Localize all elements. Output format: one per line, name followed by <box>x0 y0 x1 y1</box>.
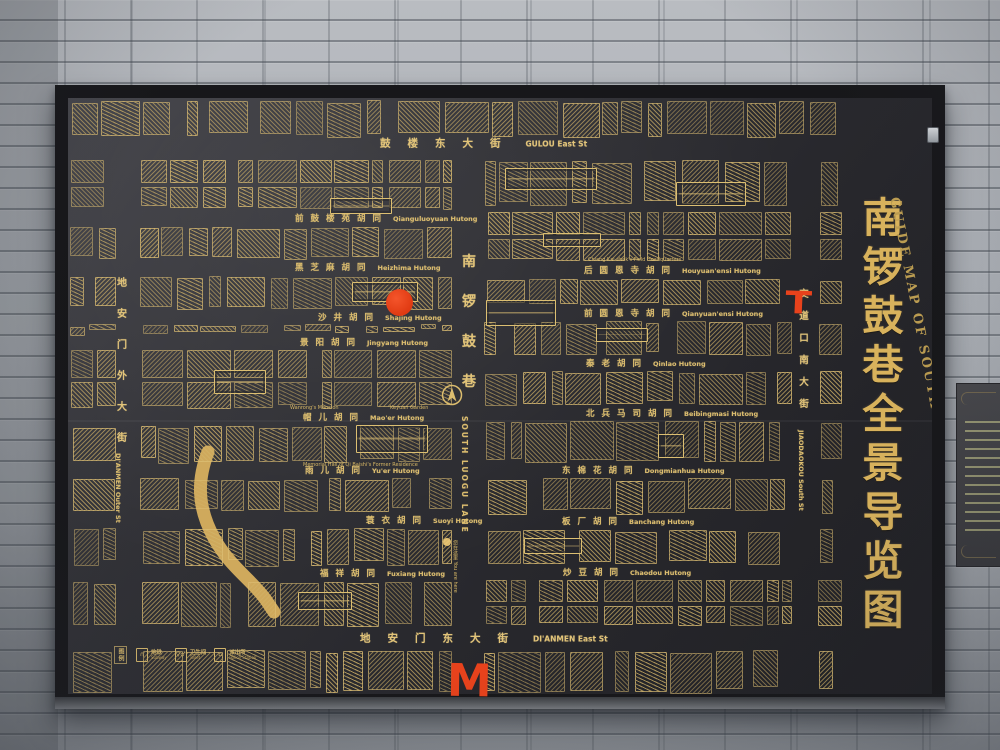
building-illustration <box>356 425 428 453</box>
map-block <box>259 428 287 462</box>
map-block <box>407 651 433 690</box>
map-block <box>485 161 496 206</box>
hutong-en: Mao'er Hutong <box>370 414 424 422</box>
map-block <box>237 229 280 258</box>
map-block <box>706 580 725 602</box>
map-block <box>187 101 198 137</box>
street-char: 南 <box>454 242 484 282</box>
hutong-label: 帽儿胡同Mao'er Hutong <box>303 411 424 423</box>
map-block <box>238 160 254 183</box>
map-block <box>747 103 776 138</box>
map-block <box>189 228 208 257</box>
map-block <box>511 580 526 602</box>
map-block <box>552 371 563 405</box>
street-char: 大 <box>792 372 816 394</box>
hutong-cn: 福祥胡同 <box>320 567 382 579</box>
hutong-en: Qianguluoyuan Hutong <box>393 215 477 223</box>
map-block <box>142 382 183 406</box>
map-block <box>709 531 736 562</box>
map-block <box>392 478 411 508</box>
map-block <box>677 321 707 354</box>
map-block <box>820 371 842 404</box>
map-block <box>140 277 171 308</box>
map-block <box>161 227 182 256</box>
photo-of-guide-map-sign: 鼓楼东大街 GULOU East St 地安门东大街 DI'ANMEN East… <box>0 0 1000 750</box>
hutong-label: 福祥胡同Fuxiang Hutong <box>320 567 445 579</box>
map-block <box>443 187 452 210</box>
plaque-scroll-ornament <box>961 545 996 558</box>
map-block <box>141 187 167 206</box>
hutong-en: Yu'er Hutong <box>372 467 420 475</box>
title-char: 览 <box>854 537 912 586</box>
map-block <box>511 422 523 459</box>
map-block <box>185 529 223 566</box>
map-block <box>539 606 563 624</box>
map-block <box>300 160 331 183</box>
map-block <box>278 350 307 378</box>
map-block <box>260 101 290 134</box>
map-block <box>566 324 596 355</box>
map-block <box>366 326 378 334</box>
map-block <box>719 239 762 261</box>
map-block <box>745 279 779 303</box>
you-are-here-en: You are here <box>452 562 458 593</box>
map-block <box>543 478 567 510</box>
map-block <box>648 481 686 513</box>
map-block <box>486 422 505 460</box>
map-block <box>525 423 567 463</box>
plaque-scroll-ornament <box>961 392 996 405</box>
map-block <box>821 423 842 459</box>
hutong-en: Beibingmasi Hutong <box>684 410 758 418</box>
map-block <box>688 478 731 509</box>
map-block <box>644 161 675 201</box>
map-block <box>818 580 842 602</box>
map-block <box>226 426 253 461</box>
building-illustration <box>524 538 582 554</box>
street-char: 口 <box>792 328 816 350</box>
map-block <box>810 102 837 135</box>
map-block <box>343 651 363 692</box>
map-block <box>142 350 183 378</box>
map-block <box>663 212 684 235</box>
map-block <box>72 103 97 136</box>
map-block <box>602 102 618 135</box>
map-block <box>629 212 641 235</box>
map-block <box>604 580 633 602</box>
map-block <box>170 160 198 183</box>
map-block <box>730 580 764 602</box>
map-block <box>616 422 659 461</box>
map-block <box>545 652 565 693</box>
hutong-cn: 北兵马司胡同 <box>586 407 679 419</box>
red-letter-m: M <box>447 658 493 704</box>
hutong-en: Suoyi Hutong <box>433 517 482 525</box>
map-block <box>636 606 674 625</box>
map-block <box>512 212 553 235</box>
map-block <box>334 382 372 407</box>
map-block <box>779 101 804 134</box>
map-block <box>248 481 280 511</box>
building-illustration <box>298 592 352 610</box>
map-block <box>311 531 322 566</box>
map-block <box>389 187 422 208</box>
map-block <box>488 480 527 515</box>
hutong-label: 黑芝麻胡同Heizhima Hutong <box>295 261 441 273</box>
hutong-cn: 前圆恩寺胡同 <box>584 307 677 319</box>
map-block <box>94 584 116 625</box>
map-block <box>484 322 496 355</box>
map-block <box>518 101 558 134</box>
map-block <box>819 651 833 689</box>
map-block <box>101 101 140 136</box>
map-block <box>821 162 839 206</box>
map-block <box>268 651 307 690</box>
map-block <box>384 229 423 259</box>
map-block <box>730 606 764 626</box>
map-block <box>335 326 349 333</box>
map-block <box>647 371 672 401</box>
map-block <box>377 382 416 407</box>
map-block <box>220 583 231 628</box>
street-char: 街 <box>792 394 816 416</box>
map-block <box>74 529 99 566</box>
map-block <box>764 162 787 207</box>
hutong-cn: 东棉花胡同 <box>562 464 640 476</box>
map-block <box>704 421 717 462</box>
site-label: Memorial Hall of Qi Baishi's Former Resi… <box>303 462 418 468</box>
map-block <box>748 532 780 566</box>
building-illustration <box>658 434 684 458</box>
side-plaque <box>956 383 1000 567</box>
map-block <box>278 382 307 406</box>
map-block <box>143 531 180 564</box>
map-block <box>604 606 633 625</box>
map-block <box>424 582 452 627</box>
map-block <box>372 160 384 183</box>
map-block <box>710 101 744 136</box>
hutong-en: Banchang Hutong <box>629 518 694 526</box>
map-block <box>777 372 792 403</box>
map-block <box>70 327 85 336</box>
map-block <box>383 327 416 332</box>
map-block <box>367 100 381 134</box>
map-block <box>629 239 641 260</box>
map-block <box>73 479 115 511</box>
map-block <box>485 374 518 406</box>
map-block <box>89 324 116 329</box>
hutong-label: 前圆恩寺胡同Qianyuan'ensi Hutong <box>584 307 763 319</box>
hutong-en: Chaodou Hutong <box>630 569 691 577</box>
map-block <box>615 532 657 564</box>
map-block <box>765 212 790 235</box>
map-block <box>97 350 116 378</box>
map-block <box>746 372 766 405</box>
map-block <box>284 229 307 260</box>
map-block <box>579 530 612 561</box>
map-block <box>770 479 785 510</box>
building-illustration <box>676 182 746 206</box>
building-illustration <box>214 370 266 394</box>
hutong-cn: 景阳胡同 <box>300 336 362 348</box>
legend-title: 图例 <box>114 646 127 664</box>
title-char: 巷 <box>854 341 912 390</box>
map-block <box>419 350 452 378</box>
map-block <box>716 651 743 690</box>
map-block <box>421 324 436 329</box>
map-block <box>73 428 116 462</box>
map-block <box>767 606 779 626</box>
map-block <box>539 580 563 602</box>
map-block <box>99 228 116 258</box>
map-block <box>739 422 765 462</box>
map-block <box>648 103 662 137</box>
map-block <box>688 239 716 260</box>
map-block <box>429 478 452 509</box>
hutong-en: Shajing Hutong <box>385 314 442 322</box>
map-block <box>486 606 507 625</box>
street-en: DI'ANMEN East St <box>533 635 608 644</box>
map-block <box>305 324 331 331</box>
hutong-label: 景阳胡同Jingyang Hutong <box>300 336 428 348</box>
map-block <box>398 101 440 133</box>
map-block <box>735 479 767 511</box>
map-block <box>488 212 510 235</box>
map-block <box>570 421 614 460</box>
map-block <box>70 277 84 306</box>
red-letter-t: T <box>785 288 813 320</box>
hutong-label: 东棉花胡同Dongmianhua Hutong <box>562 464 725 476</box>
map-block <box>141 160 167 183</box>
map-block <box>720 422 736 462</box>
map-block <box>746 324 771 356</box>
hutong-en: Qinlao Hutong <box>653 360 706 368</box>
hutong-label: 后圆恩寺胡同Houyuan'ensi Hutong <box>584 264 761 276</box>
map-block <box>592 163 631 204</box>
map-block <box>635 652 668 692</box>
street-label-south-luogu-cn: 南锣鼓巷 <box>454 242 484 402</box>
map-block <box>334 160 369 183</box>
map-block <box>777 322 792 354</box>
map-block <box>389 160 422 183</box>
map-block <box>636 580 674 602</box>
map-block <box>387 529 405 565</box>
map-block <box>248 582 277 626</box>
map-block <box>158 428 189 464</box>
hutong-cn: 帽儿胡同 <box>303 411 365 423</box>
map-block <box>647 212 660 235</box>
map-block <box>310 651 322 688</box>
hutong-label: 蓑衣胡同Suoyi Hutong <box>366 514 482 526</box>
map-block <box>141 426 156 458</box>
map-block <box>563 103 600 139</box>
hutong-en: Dongmianhua Hutong <box>645 467 725 475</box>
map-block <box>819 324 842 355</box>
map-block <box>142 582 179 624</box>
building-illustration <box>486 300 556 326</box>
map-block <box>408 530 439 565</box>
map-block <box>514 323 535 355</box>
title-char: 导 <box>854 488 912 537</box>
map-block <box>699 374 743 405</box>
building-illustration <box>330 198 392 214</box>
street-char: 鼓 <box>454 322 484 362</box>
map-block <box>271 278 288 308</box>
map-block <box>425 160 440 183</box>
map-block <box>203 187 226 208</box>
street-label-dianmen-outer-en: DI'ANMEN Outer St <box>114 453 122 523</box>
map-block <box>345 480 389 512</box>
title-char: 图 <box>854 586 912 635</box>
map-block <box>352 227 379 257</box>
map-block <box>570 478 610 509</box>
sign-frame-bottom-lip <box>55 697 945 709</box>
map-block <box>73 582 88 625</box>
map-block <box>347 583 379 626</box>
map-block <box>200 326 236 332</box>
map-block <box>442 530 452 564</box>
hutong-cn: 秦老胡同 <box>586 357 648 369</box>
map-block <box>245 530 278 567</box>
map-block <box>707 280 743 304</box>
map-block <box>227 277 266 307</box>
map-block <box>820 281 842 304</box>
map-block <box>71 187 104 207</box>
hutong-cn: 炒豆胡同 <box>563 566 625 578</box>
map-block <box>97 382 116 407</box>
map-block <box>327 103 361 139</box>
map-block <box>782 606 792 624</box>
map-block <box>541 322 562 355</box>
map-block <box>368 651 404 690</box>
map-block <box>765 239 790 259</box>
map-block <box>498 652 540 693</box>
street-char: 锣 <box>454 282 484 322</box>
hutong-cn: 板厂胡同 <box>562 515 624 527</box>
map-block <box>143 102 170 135</box>
map-block <box>174 325 198 332</box>
map-block <box>311 228 349 257</box>
map-block <box>185 480 218 509</box>
map-block <box>209 276 221 307</box>
map-block <box>71 382 94 409</box>
map-block <box>706 606 725 624</box>
map-block <box>322 382 332 409</box>
map-block <box>284 480 319 512</box>
map-block <box>615 651 629 692</box>
street-label-dianmen-east: 地安门东大街 DI'ANMEN East St <box>360 631 608 646</box>
map-block <box>143 325 168 334</box>
hutong-label: 炒豆胡同Chaodou Hutong <box>563 566 691 578</box>
street-label-jiaodaokou-en: JIAODAOKOU South St <box>797 430 805 511</box>
map-block <box>228 528 243 560</box>
map-block <box>385 582 412 624</box>
map-block <box>296 101 323 136</box>
map-block <box>669 530 707 562</box>
map-block <box>580 280 618 305</box>
street-cn: 鼓楼东大街 <box>380 136 518 151</box>
map-block <box>170 187 198 208</box>
plaque-text-lines <box>965 414 1000 536</box>
map-block <box>565 373 600 405</box>
street-char: 南 <box>792 350 816 372</box>
you-are-here-label: 您在这里 You are here <box>452 540 459 593</box>
title-char: 鼓 <box>854 292 912 341</box>
map-block <box>300 187 331 209</box>
map-block <box>679 373 695 404</box>
map-block <box>667 101 708 134</box>
hutong-en: Houyuan'ensi Hutong <box>682 267 761 275</box>
map-block <box>822 480 833 514</box>
hutong-cn: 沙井胡同 <box>318 311 380 323</box>
street-en: GULOU East St <box>526 140 588 149</box>
map-block <box>438 277 452 309</box>
map-block <box>556 212 580 235</box>
map-block <box>488 531 521 564</box>
map-block <box>258 160 297 183</box>
map-block <box>445 102 489 133</box>
map-block <box>73 652 112 693</box>
hutong-label: 北兵马司胡同Beibingmasi Hutong <box>586 407 758 419</box>
hutong-en: Fuxiang Hutong <box>387 570 445 578</box>
title-char: 全 <box>854 390 912 439</box>
map-block <box>203 160 226 183</box>
you-are-here-cn: 您在这里 <box>452 540 458 560</box>
map-block <box>647 239 660 261</box>
map-block <box>329 478 341 510</box>
map-block <box>334 350 372 378</box>
hutong-label: 秦老胡同Qinlao Hutong <box>586 357 706 369</box>
map-block <box>511 606 526 626</box>
map-block <box>293 278 333 309</box>
hutong-label: 板厂胡同Banchang Hutong <box>562 515 694 527</box>
map-block <box>443 160 452 183</box>
map-block <box>753 650 778 687</box>
map-block <box>818 606 842 627</box>
map-block <box>442 325 452 331</box>
map-block <box>324 426 347 463</box>
hutong-cn: 后圆恩寺胡同 <box>584 264 677 276</box>
map-block <box>322 350 332 378</box>
map-block <box>181 582 216 627</box>
map-block <box>326 653 339 694</box>
map-block <box>177 278 204 310</box>
map-layer: 鼓楼东大街 GULOU East St 地安门东大街 DI'ANMEN East… <box>68 98 932 694</box>
map-block <box>71 350 94 378</box>
hutong-cn: 蓑衣胡同 <box>366 514 428 526</box>
map-block <box>621 101 642 134</box>
map-block <box>688 212 716 235</box>
mounting-clip <box>927 127 939 143</box>
map-block <box>419 382 452 406</box>
map-block <box>227 650 265 688</box>
map-block <box>292 427 322 461</box>
map-block <box>769 422 780 461</box>
map-block <box>377 350 416 378</box>
map-block <box>209 101 248 133</box>
map-block <box>238 187 254 207</box>
map-block <box>186 652 223 691</box>
red-dot-marker <box>386 289 413 316</box>
map-block <box>143 651 183 692</box>
map-block <box>567 606 598 624</box>
map-block <box>71 160 104 183</box>
map-block <box>820 529 833 563</box>
map-block <box>583 212 625 235</box>
map-block <box>678 580 702 602</box>
street-label-gulou-east: 鼓楼东大街 GULOU East St <box>380 136 587 151</box>
map-block <box>427 227 452 258</box>
